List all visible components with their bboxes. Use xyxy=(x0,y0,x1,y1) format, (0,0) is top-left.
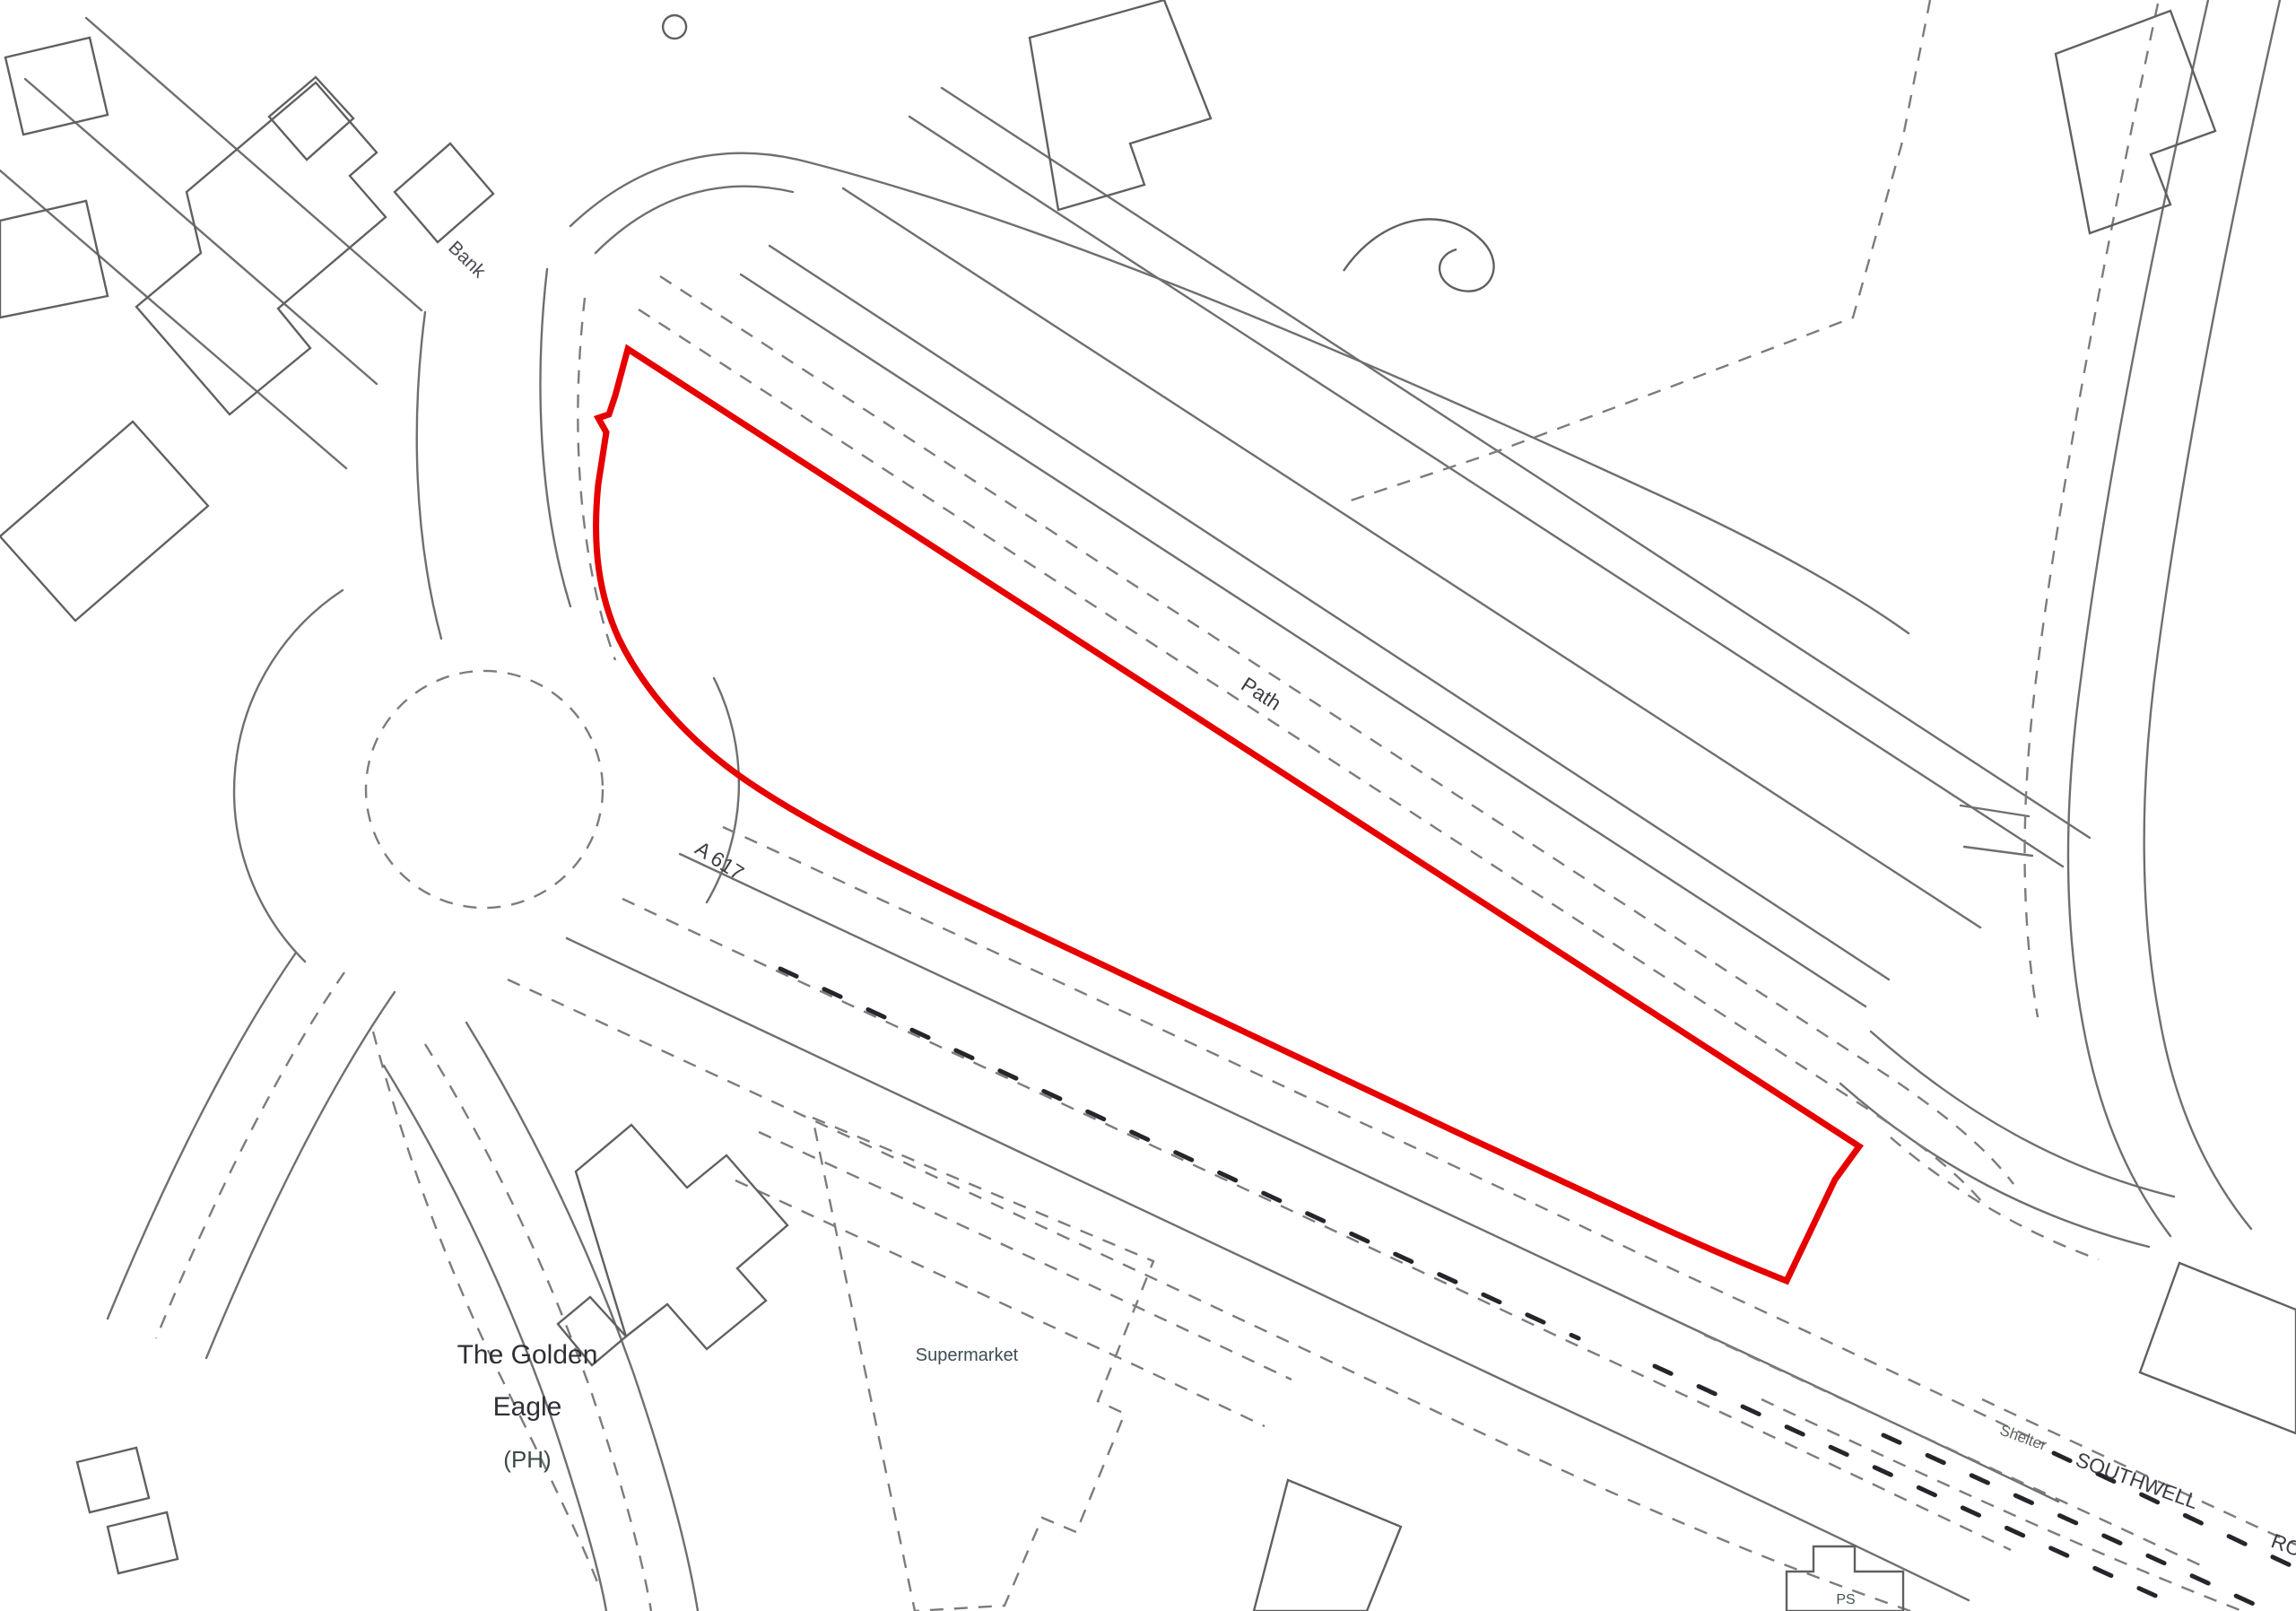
map-canvas: BankPathA 617SupermarketThe GoldenEagle(… xyxy=(0,0,2296,1611)
site-plan-map: BankPathA 617SupermarketThe GoldenEagle(… xyxy=(0,0,2296,1611)
map-label-ps: PS xyxy=(1836,1592,1855,1607)
map-background xyxy=(0,0,2296,1611)
map-label-golden-eagle-line1: The Golden xyxy=(457,1340,598,1370)
map-label-supermarket: Supermarket xyxy=(916,1345,1019,1365)
map-label-golden-eagle-line3: (PH) xyxy=(503,1446,551,1473)
map-label-golden-eagle-line2: Eagle xyxy=(493,1392,562,1422)
